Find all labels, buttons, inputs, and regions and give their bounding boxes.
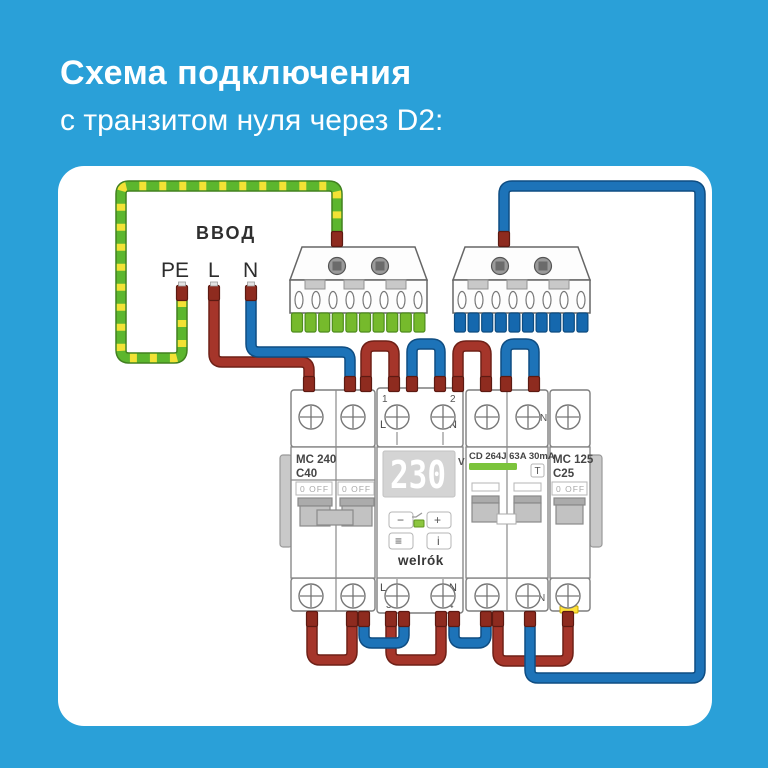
wire-ferrule — [399, 612, 410, 627]
n-busbar-tooth — [577, 313, 588, 332]
wire-ferrule — [407, 377, 418, 392]
pe-busbar-tooth — [292, 313, 303, 332]
wire-ferrule — [177, 286, 188, 301]
wire-ferrule — [563, 612, 574, 627]
busbar-slot — [295, 292, 303, 309]
wiring-diagram: Схема подключения с транзитом нуля через… — [0, 0, 768, 768]
breaker-line-state: 0 OFF — [556, 484, 585, 494]
wire-ferrule — [436, 612, 447, 627]
wire-ferrule — [304, 377, 315, 392]
n-busbar-tooth — [455, 313, 466, 332]
n-busbar-tooth — [495, 313, 506, 332]
relay-minus-label: − — [397, 513, 404, 527]
pe-busbar-tooth — [387, 313, 398, 332]
busbar-slot — [492, 292, 500, 309]
busbar-slot — [577, 292, 585, 309]
wire-ferrule — [499, 232, 510, 247]
breaker-main-toggle-tie[interactable] — [317, 510, 353, 525]
input-pe-label: PE — [161, 259, 189, 282]
wire-ferrule — [209, 286, 220, 301]
page-title: Схема подключения — [60, 54, 412, 92]
busbar-screw-nut — [376, 262, 385, 271]
busbar-slot — [543, 292, 551, 309]
wire-ferrule — [525, 612, 536, 627]
wire-ferrule — [501, 377, 512, 392]
busbar-slot — [458, 292, 466, 309]
pe-busbar-tooth — [346, 313, 357, 332]
wire-ferrule — [332, 232, 343, 247]
busbar-tab — [549, 280, 569, 289]
wire-ferrule — [389, 377, 400, 392]
relay-brand-logo: welrók — [397, 553, 444, 568]
relay-info-label: i — [437, 534, 440, 548]
n-busbar-tooth — [509, 313, 520, 332]
pe-busbar-tooth — [332, 313, 343, 332]
busbar-tab — [386, 280, 406, 289]
busbar-slot — [414, 292, 422, 309]
rcd-label: CD 264J 63A 30mA — [469, 451, 555, 462]
wire-tip — [179, 282, 186, 286]
rcd-terminal-n-top: N — [540, 413, 547, 424]
din-tab-right — [590, 455, 602, 547]
wire-ferrule — [347, 612, 358, 627]
input-n-label: N — [243, 259, 258, 282]
input-title: ВВОД — [196, 223, 256, 243]
wire-ferrule — [481, 377, 492, 392]
relay-display-unit: V — [458, 457, 465, 468]
wire-ferrule — [361, 377, 372, 392]
wire-ferrule — [449, 612, 460, 627]
wire-ferrule — [307, 612, 318, 627]
wire-tip — [248, 282, 255, 286]
pe-busbar-tooth — [400, 313, 411, 332]
pe-busbar-tooth — [360, 313, 371, 332]
breaker-line-curve: C25 — [553, 468, 575, 480]
busbar-slot — [346, 292, 354, 309]
n-busbar-tooth — [550, 313, 561, 332]
rcd-indicator-stripe — [469, 463, 517, 470]
breaker-line-toggle[interactable] — [556, 505, 583, 524]
relay-display-value: 230 — [390, 453, 446, 497]
relay-terminal-1-label: 1 — [382, 394, 388, 405]
breaker-main-model: MC 240 — [296, 454, 336, 466]
busbar-slot — [526, 292, 534, 309]
wire-ferrule — [529, 377, 540, 392]
wire-tip — [211, 282, 218, 286]
pe-busbar-tooth — [305, 313, 316, 332]
n-busbar-tooth — [563, 313, 574, 332]
busbar-slot — [509, 292, 517, 309]
din-tab-left — [280, 455, 292, 547]
busbar-slot — [475, 292, 483, 309]
relay-terminal-2-label: 2 — [450, 394, 456, 405]
pe-busbar-tooth — [414, 313, 425, 332]
busbar-slot — [560, 292, 568, 309]
busbar-screw-nut — [333, 262, 342, 271]
busbar-tab — [344, 280, 364, 289]
n-busbar-tooth — [482, 313, 493, 332]
rcd-test-label: T — [535, 466, 541, 477]
wire-ferrule — [435, 377, 446, 392]
busbar-slot — [363, 292, 371, 309]
n-busbar-tooth — [536, 313, 547, 332]
breaker-main-state-2: 0 OFF — [342, 484, 371, 494]
busbar-slot — [397, 292, 405, 309]
breaker-main-state-1: 0 OFF — [300, 484, 329, 494]
relay-plus-label: + — [434, 513, 441, 527]
rcd-toggle-1[interactable] — [472, 503, 499, 522]
input-l-label: L — [208, 259, 220, 282]
relay-menu-label: ≡ — [395, 534, 402, 548]
busbar-screw-nut — [539, 262, 548, 271]
n-busbar-tooth — [468, 313, 479, 332]
wire-ferrule — [359, 612, 370, 627]
wire-ferrule — [493, 612, 504, 627]
wire-ferrule — [453, 377, 464, 392]
breaker-main-curve: C40 — [296, 468, 317, 480]
busbar-tab — [305, 280, 325, 289]
relay-led — [414, 520, 424, 527]
wire-ferrule — [345, 377, 356, 392]
n-busbar-tooth — [523, 313, 534, 332]
wire-ferrule — [386, 612, 397, 627]
page-subtitle: с транзитом нуля через D2: — [60, 104, 443, 137]
pe-busbar-tooth — [319, 313, 330, 332]
breaker-line-model: MC 125 — [553, 454, 594, 466]
busbar-tab — [468, 280, 488, 289]
busbar-slot — [329, 292, 337, 309]
rcd-toggle-link — [497, 514, 516, 524]
busbar-screw-nut — [496, 262, 505, 271]
rcd-toggle-2[interactable] — [514, 503, 541, 522]
busbar-slot — [312, 292, 320, 309]
busbar-slot — [380, 292, 388, 309]
pe-busbar-tooth — [373, 313, 384, 332]
wire-ferrule — [481, 612, 492, 627]
wire-ferrule — [246, 286, 257, 301]
busbar-tab — [507, 280, 527, 289]
